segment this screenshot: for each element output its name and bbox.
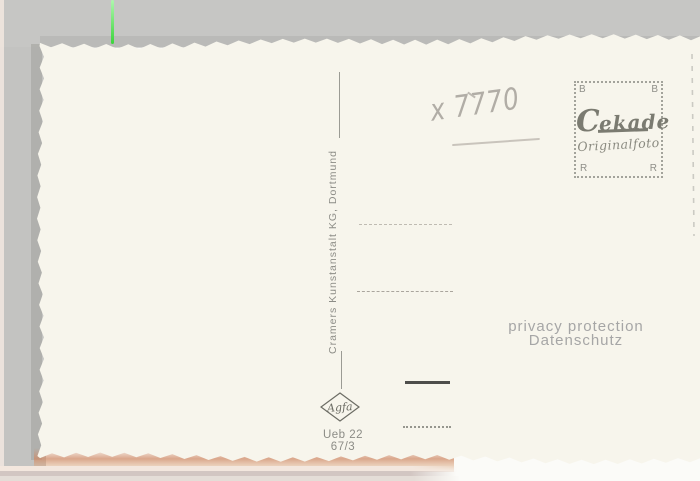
cekade-logo: Cekade — [575, 102, 661, 140]
originalfoto-script: Originalfoto — [576, 135, 662, 154]
scanned-postcard-back: B B R R Cekade Originalfoto x 7770 Crame… — [0, 0, 700, 481]
stamp-corner-letter: B — [579, 85, 586, 95]
green-scratch — [111, 0, 114, 44]
divider-line-bottom — [341, 351, 342, 389]
address-line — [359, 224, 452, 225]
stamp-corner-letter: R — [650, 164, 657, 174]
scan-edge-warm-strip — [0, 0, 4, 481]
stamp-corner-letter: R — [580, 164, 587, 174]
privacy-watermark: privacy protection Datenschutz — [486, 320, 666, 348]
series-number: 67/3 — [308, 441, 378, 453]
stamp-box: B B R R Cekade Originalfoto — [574, 81, 663, 178]
bottom-strip-mauve — [0, 471, 456, 476]
bottom-strip-light — [0, 476, 460, 481]
agfa-logo-text: Agfa — [327, 400, 353, 415]
privacy-watermark-line2: Datenschutz — [486, 334, 666, 348]
card-shadow-left — [31, 44, 42, 460]
agfa-logo: Agfa — [320, 392, 360, 422]
address-line — [357, 291, 453, 292]
order-number: Ueb 22 — [308, 429, 378, 441]
stamp-corner-letter: B — [651, 85, 658, 95]
dotted-form-line — [403, 426, 451, 428]
divider-line-top — [339, 72, 340, 138]
solid-form-line — [405, 381, 450, 384]
publisher-imprint: Cramers Kunstanstalt KG, Dortmund — [327, 142, 342, 354]
